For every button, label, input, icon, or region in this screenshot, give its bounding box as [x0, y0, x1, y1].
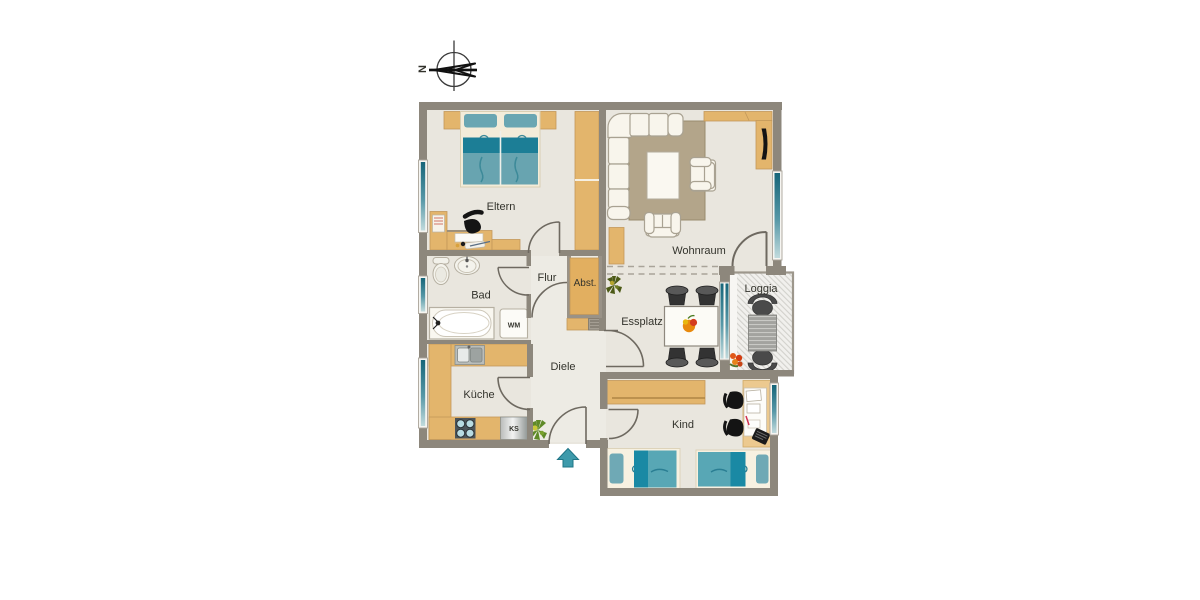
svg-text:Diele: Diele — [550, 361, 575, 373]
svg-text:Flur: Flur — [538, 272, 557, 284]
svg-text:Eltern: Eltern — [487, 201, 516, 213]
svg-text:Bad: Bad — [471, 290, 491, 302]
svg-text:Abst.: Abst. — [574, 278, 597, 289]
svg-text:Küche: Küche — [463, 389, 494, 401]
svg-text:WM: WM — [508, 323, 521, 330]
svg-text:KS: KS — [509, 426, 519, 433]
svg-text:Essplatz: Essplatz — [621, 316, 663, 328]
svg-text:N: N — [417, 65, 429, 73]
svg-text:Loggia: Loggia — [744, 283, 778, 295]
svg-text:Kind: Kind — [672, 419, 694, 431]
svg-text:Wohnraum: Wohnraum — [672, 245, 726, 257]
